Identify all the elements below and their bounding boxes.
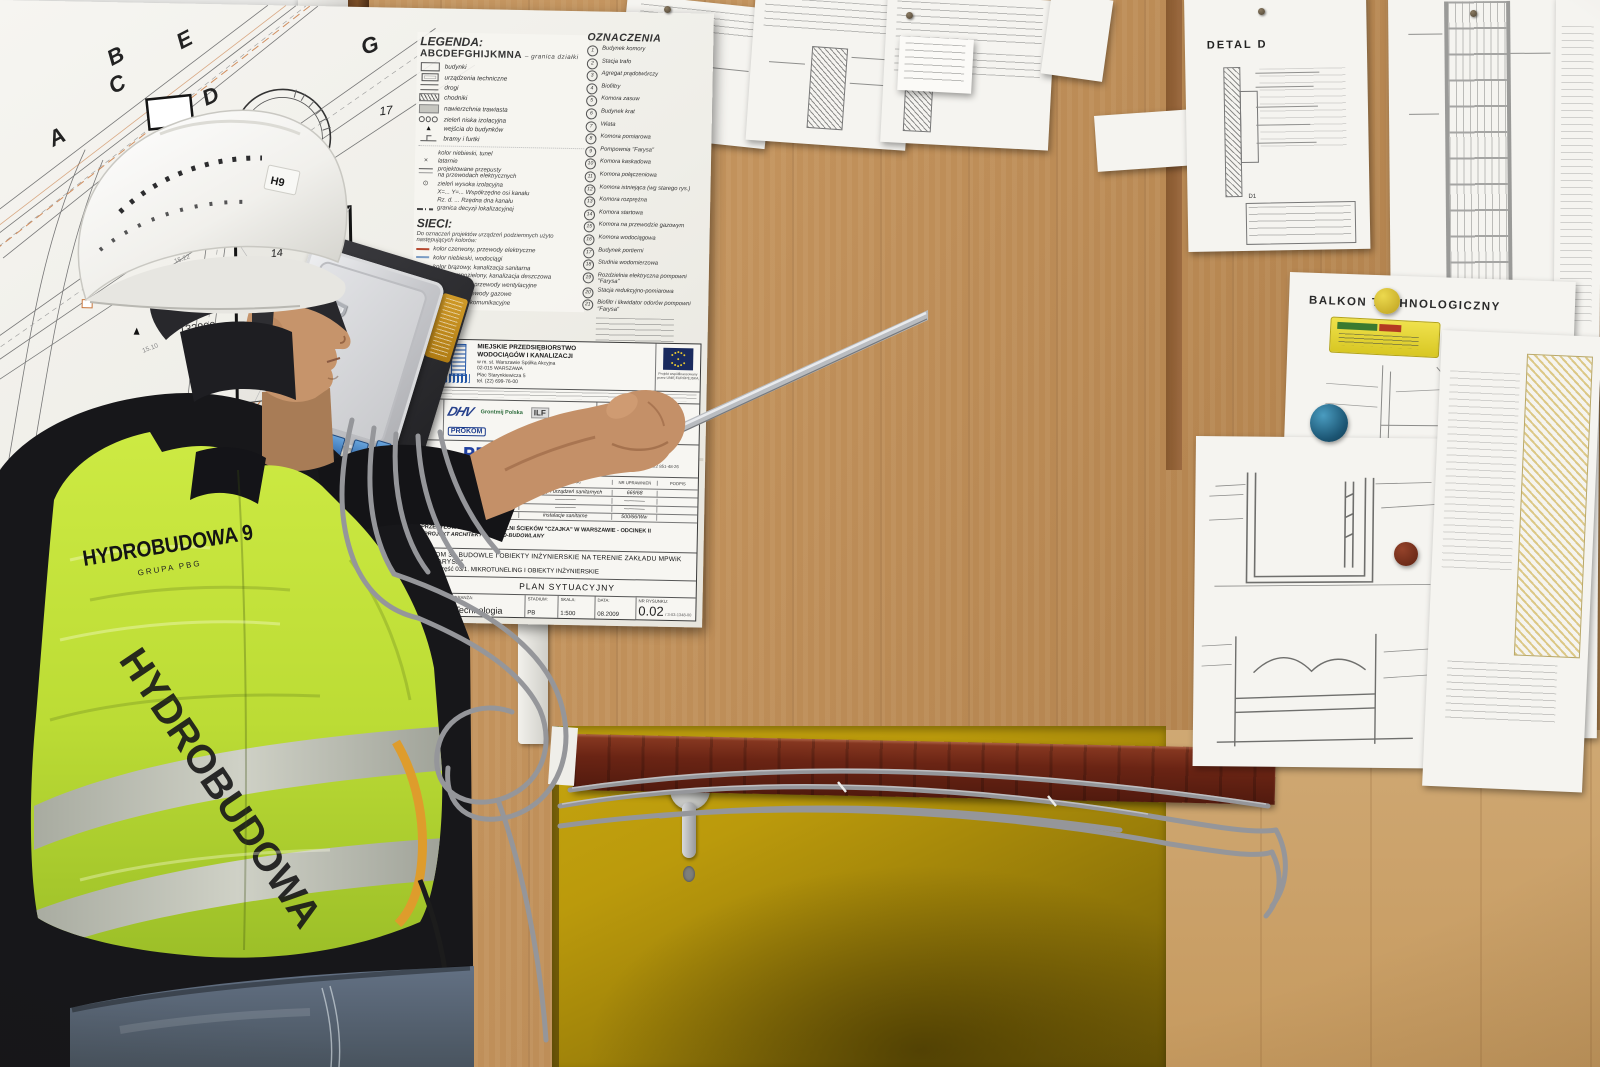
door-handle-lever — [682, 802, 696, 858]
structure-1: 1 — [277, 127, 287, 147]
red-line-icon — [416, 248, 429, 250]
road-symbol-icon — [419, 84, 439, 90]
designation-item: 1 Budynek komory — [587, 45, 709, 58]
designation-item: 21 Biofiltr i likwidator odorów pompowni… — [582, 299, 704, 315]
designation-item: 20 Stacja redukcyjno-pomiarowa — [582, 287, 704, 300]
plan-designations: OZNACZENIA 1 Budynek komory 2 Stacja tra… — [581, 31, 709, 353]
detal-d-sheet: DETAL D D1 — [1184, 0, 1370, 252]
push-pin — [1470, 10, 1477, 17]
designation-item: 17 Budynek portierni — [583, 247, 705, 260]
road-letter-n: N — [74, 253, 102, 288]
radiator-panel — [0, 702, 70, 960]
blue-line-icon — [416, 256, 429, 258]
designation-item: 2 Stacja trafo — [587, 58, 709, 71]
designations-list: 1 Budynek komory 2 Stacja trafo 3 Agrega… — [582, 45, 709, 315]
personnel-table: FUNKCJA IMIĘ I NAZWISKO SPECJALNOŚĆ NR U… — [397, 473, 698, 523]
small-note-sheet — [897, 36, 974, 94]
designation-item: 12 Komora istniejąca (wg starego rys.) — [584, 184, 706, 197]
svg-text:14.64: 14.64 — [255, 206, 273, 217]
push-pin — [664, 6, 671, 13]
designation-item: 16 Komora wodociągowa — [583, 234, 705, 247]
consortium-logos: DHV Grontmij Polska ILF PROKOM — [444, 399, 598, 442]
title-block-footer: Nr umowy:10/JRP/U/2008 Branża:Technologi… — [395, 593, 695, 621]
grontmij-logo: Grontmij Polska — [481, 409, 523, 416]
walkway-symbol-icon — [419, 93, 439, 101]
svg-text:14.97: 14.97 — [114, 200, 132, 214]
designation-item: 15 Komora na przewodzie gazowym — [584, 222, 706, 235]
building-symbol-icon — [420, 62, 440, 71]
legend-item-entrances: ▲wejścia do budynków — [419, 125, 585, 135]
designation-item: 14 Komora startowa — [584, 209, 706, 222]
paper-scrap — [548, 726, 578, 786]
legend-item-walkways: chodniki — [419, 93, 585, 104]
legend-item-gates: bramy i furtki — [418, 135, 584, 145]
consortium-leader: LIDER KONSORCJUM DHV POLSKA Sp. z o.o. u… — [597, 402, 700, 444]
detail-table: D1 — [1246, 201, 1357, 245]
legend-item-roads: drogi — [419, 84, 585, 94]
designation-item: 7 Wiata — [586, 121, 708, 134]
svg-text:15.10: 15.10 — [141, 342, 159, 354]
sections-sheet — [1193, 436, 1452, 769]
structure-18: 18 — [201, 281, 216, 297]
designation-item: 11 Komora połączeniowa — [585, 171, 707, 184]
pipe-note: Ø300, L=58 m — [229, 507, 281, 523]
legend-item-grass: nawierzchnia trawiasta — [419, 104, 585, 116]
designation-item: 6 Budynek krat — [586, 108, 708, 121]
door-keyhole — [683, 866, 695, 882]
designation-item: 10 Komora kaskadowa — [585, 159, 707, 172]
dhv-logo: DHV — [446, 404, 476, 419]
dimension-label: 132800 — [179, 320, 217, 336]
eu-funding-cell: Projekt współfinansowanyprzez UNIĘ EUROP… — [655, 344, 701, 392]
designation-item: 13 Komora rozprężna — [584, 196, 706, 209]
yellow-hatch-area — [1514, 354, 1593, 659]
prokom-small-logo: PROKOM — [448, 426, 486, 436]
eu-flag-icon — [663, 348, 693, 371]
blue-magnet — [1310, 404, 1348, 442]
gate-symbol-icon — [418, 135, 438, 141]
structure-14: 14 — [270, 247, 284, 260]
structure-3: 3 — [147, 146, 154, 158]
legend-extras: kolor niebieski, tunel ×latarnie projekt… — [417, 145, 584, 215]
detal-d-title: DETAL D — [1207, 39, 1268, 52]
technical-symbol-icon — [420, 73, 440, 81]
designations-title: OZNACZENIA — [587, 31, 709, 45]
road-letter-c: C — [104, 69, 130, 99]
road-letter-e: E — [172, 24, 198, 54]
designation-item: 19 Rozdzielnia elektryczna pompowni "Far… — [583, 272, 705, 288]
designation-item: 18 Studnia wodomierzowa — [583, 259, 705, 272]
design-office-info: PROKOM Sp. z o.o. 00-718 Warszawa ul. Cz… — [572, 443, 699, 478]
low-green-symbol-icon — [419, 116, 439, 122]
designation-item: 9 Pompownia "Farysa" — [585, 146, 707, 159]
wall-trim-strip-right — [1166, 0, 1182, 470]
lantern-symbol-icon: × — [418, 158, 434, 164]
designation-item: 8 Komora pomiarowa — [585, 133, 707, 146]
designation-item: 5 Komora zasuw — [586, 96, 708, 109]
detail-layer — [1240, 91, 1259, 163]
road-letter-b: B — [103, 41, 129, 71]
red-magnet — [1394, 542, 1418, 566]
high-green-symbol-icon: ⊙ — [417, 181, 433, 187]
legend-item-buildings: budynki — [420, 62, 586, 74]
yellow-magnet — [1374, 288, 1400, 314]
networks-intro: Do oznaczeń projektów urządzeń podziemny… — [416, 231, 582, 246]
road-letter-a: A — [43, 122, 69, 152]
shaft-profile-drawing — [1444, 1, 1513, 308]
prokom-logo: PROKOM® Spółka z o.o. Rok założenia 1987 — [443, 441, 573, 476]
legend-alphabet: ABCDEFGHIJKMNA – granica działki — [420, 48, 586, 62]
designation-item: 4 Biofiltry — [586, 83, 708, 96]
legend-item-technical: urządzenia techniczne — [420, 73, 586, 84]
culvert-symbol-icon — [418, 166, 434, 175]
structure-17: 17 — [379, 103, 395, 119]
grass-symbol-icon — [419, 104, 439, 113]
plan-sketch-sheet — [1422, 330, 1600, 793]
client-info: MIEJSKIE PRZEDSIĘBIORSTWO WODOCIĄGÓW I K… — [475, 340, 656, 390]
svg-text:15.22: 15.22 — [173, 253, 191, 265]
detail-table-label: D1 — [1248, 194, 1256, 200]
push-pin — [1258, 8, 1265, 15]
road-letter-g: G — [358, 31, 382, 60]
boundary-symbol-icon — [417, 205, 433, 212]
legend-item-low-green: zieleń niska izolacyjna — [419, 116, 585, 126]
entrance-symbol-icon: ▲ — [419, 125, 439, 132]
designation-item: 3 Agregat prądotwórczy — [587, 70, 709, 83]
section-sketches — [1193, 436, 1452, 769]
cable-conduit — [518, 612, 548, 744]
push-pin — [906, 12, 913, 19]
ilf-logo: ILF — [531, 408, 549, 419]
structure-13: 13 — [216, 129, 232, 145]
construction-office-photo: DETAL D D1 BALKON TECHNOLOGICZNY — [0, 0, 1600, 1067]
tiny-corner-sheet — [1041, 0, 1114, 82]
